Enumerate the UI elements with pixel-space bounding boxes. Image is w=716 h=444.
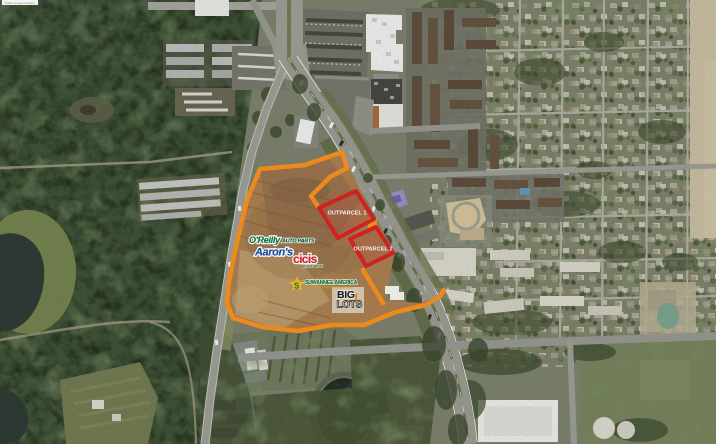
- svg-text:©2014 Google Imagery: ©2014 Google Imagery: [4, 1, 36, 5]
